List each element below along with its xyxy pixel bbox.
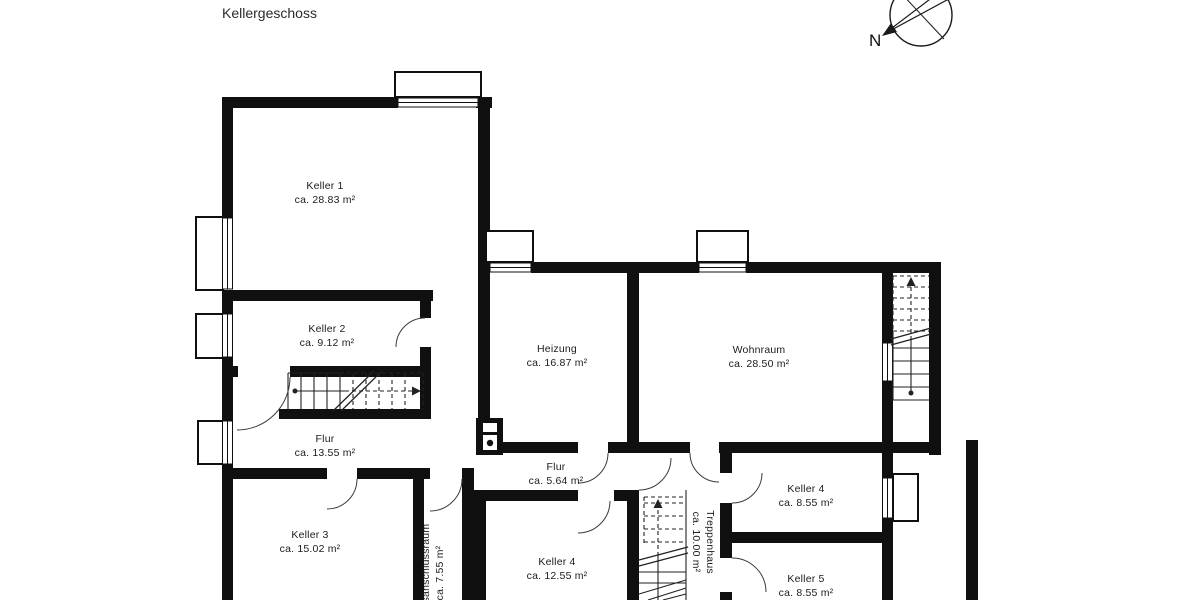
room-label-heizung: Heizung ca. 16.87 m² [527,342,588,370]
room-name: Keller 1 [295,179,356,193]
window-icon [223,314,233,357]
page-title: Kellergeschoss [222,5,317,21]
compass-rose-icon [882,0,958,46]
door-arc [430,479,462,511]
door-arc [237,377,290,430]
room-name: Flur [295,432,356,446]
window-icon [883,343,893,381]
window-icon [223,421,233,464]
chimney-symbol [476,418,503,455]
floor-plan-drawing [0,0,1200,600]
window-icon [883,478,893,518]
room-area: ca. 12.55 m² [527,569,588,583]
room-area: ca. 13.55 m² [295,446,356,460]
room-label-keller-4-small: Keller 4 ca. 8.55 m² [779,482,834,510]
room-label-flur-2: Flur ca. 5.64 m² [529,460,584,488]
room-label-hausanschlussraum: Hausanschlussraum ca. 7.55 m² [419,524,447,600]
room-label-keller-2: Keller 2 ca. 9.12 m² [300,322,355,350]
room-area: ca. 9.12 m² [300,336,355,350]
room-area: ca. 5.64 m² [529,474,584,488]
room-label-keller-5: Keller 5 ca. 8.55 m² [779,572,834,600]
room-label-wohnraum: Wohnraum ca. 28.50 m² [729,343,790,371]
room-area: ca. 8.55 m² [779,586,834,600]
door-arc [690,453,719,482]
room-name: Keller 3 [280,528,341,542]
room-name: Keller 4 [779,482,834,496]
window-icon [490,263,531,272]
window-icon [699,263,746,272]
room-name: Flur [529,460,584,474]
room-label-keller-1: Keller 1 ca. 28.83 m² [295,179,356,207]
room-name: Wohnraum [729,343,790,357]
room-area: ca. 28.83 m² [295,193,356,207]
room-area: ca. 16.87 m² [527,356,588,370]
room-name: Keller 2 [300,322,355,336]
room-name: Hausanschlussraum [419,524,433,600]
room-name: Treppenhaus [703,510,717,574]
room-name: Keller 4 [527,555,588,569]
door-arc [639,458,671,490]
compass-north-label: N [869,31,881,51]
door-arc [578,501,610,533]
room-label-flur-1: Flur ca. 13.55 m² [295,432,356,460]
door-arc [327,479,357,509]
room-name: Heizung [527,342,588,356]
room-area: ca. 15.02 m² [280,542,341,556]
room-area: ca. 8.55 m² [779,496,834,510]
room-area: ca. 7.55 m² [433,524,447,600]
door-arc [732,558,766,592]
door-arc [732,473,762,503]
room-name: Keller 5 [779,572,834,586]
room-label-treppenhaus: Treppenhaus ca. 10.00 m² [689,510,717,574]
stair-exterior [891,276,931,400]
door-arc [396,318,425,347]
window-icon [398,98,478,107]
stair-winder [639,490,688,600]
window-icon [223,218,233,289]
room-area: ca. 28.50 m² [729,357,790,371]
room-area: ca. 10.00 m² [689,510,703,574]
room-label-keller-4-large: Keller 4 ca. 12.55 m² [527,555,588,583]
floor-plan: Kellergeschoss N Keller 1 ca. 28.83 m² K… [0,0,1200,600]
room-label-keller-3: Keller 3 ca. 15.02 m² [280,528,341,556]
